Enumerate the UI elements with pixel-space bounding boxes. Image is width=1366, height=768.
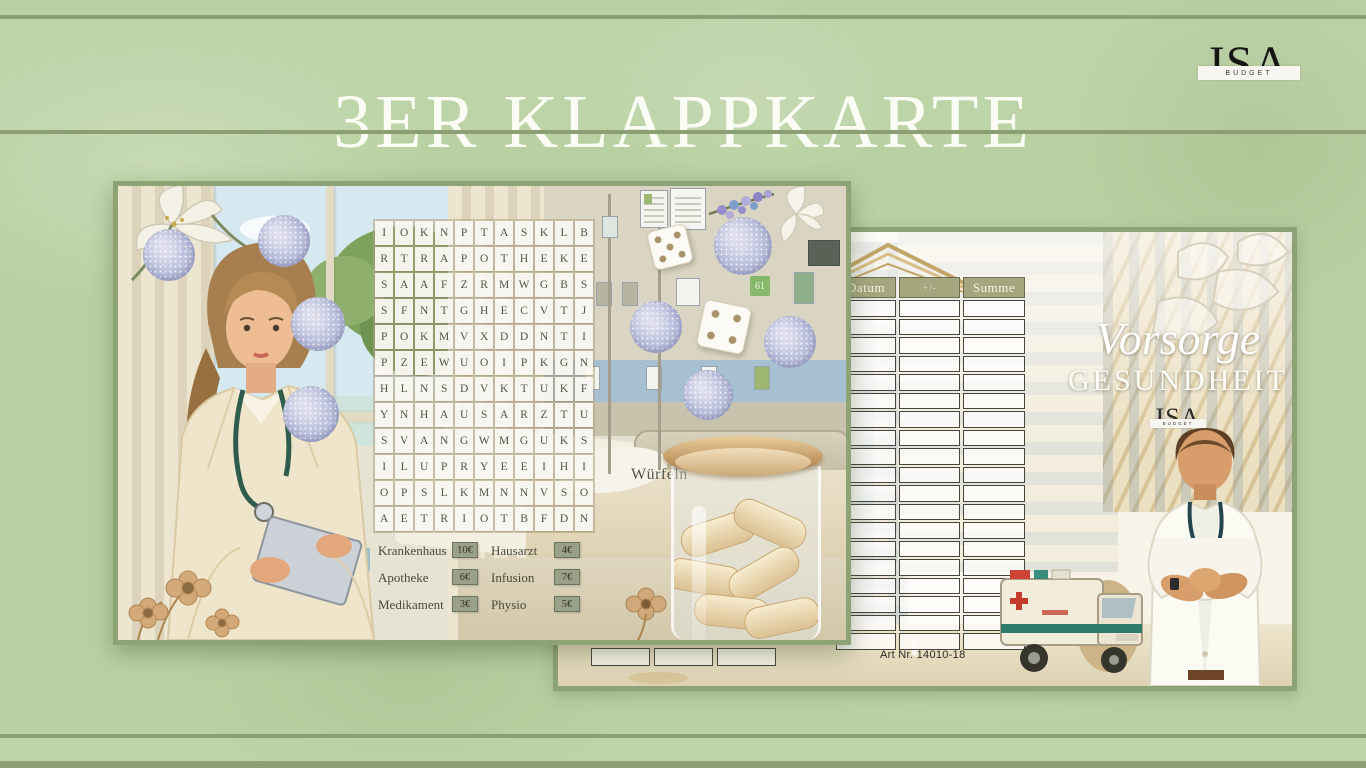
table-cell [963,411,1025,428]
wordsearch-cell: G [535,273,553,297]
wordsearch-cell: S [515,221,533,245]
wordsearch-cell: P [455,247,473,271]
table-header-row: Datum +/- Summe [836,277,1025,298]
pill [729,494,811,554]
peek-cell [717,648,776,666]
col-header-plusminus: +/- [899,277,960,298]
table-cell [963,430,1025,447]
wordsearch-cell: T [555,299,573,323]
wordsearch-cell: V [535,481,553,505]
wordsearch-cell: Z [535,403,553,427]
iv-bag [602,216,618,238]
wordsearch-cell: M [435,325,453,349]
glitter-ball [143,229,195,281]
wordsearch-cell: L [395,377,413,401]
wordsearch-cell: X [475,325,493,349]
wall-document [670,188,706,230]
legend-label: Apotheke [378,570,429,586]
promo-graphic: 3ER KLAPPKARTE ISA BUDGET [0,0,1366,768]
legend-value: 3€ [452,596,478,612]
wordsearch-cell: F [395,299,413,323]
glitter-ball [683,370,733,420]
glass-highlight [692,506,706,640]
table-cell [899,337,960,354]
title-script: Vorsorge [1028,316,1292,362]
wordsearch-cell: W [515,273,533,297]
table-cell [963,504,1025,521]
table-cell [899,411,960,428]
wordsearch-cell: E [515,455,533,479]
peek-cell [591,648,650,666]
rail-card [754,366,770,390]
wordsearch-cell: G [455,429,473,453]
wordsearch-cell: N [515,481,533,505]
wordsearch-cell: N [495,481,513,505]
wordsearch-cell: K [415,221,433,245]
peek-cell [654,648,713,666]
wordsearch-cell: F [535,507,553,531]
wordsearch-cell: B [575,221,593,245]
price-legend: Krankenhaus 10€ Apotheke 6€ Medikament 3… [378,543,618,623]
wordsearch-cell: U [575,403,593,427]
wordsearch-cell: T [435,299,453,323]
wordsearch-cell: I [575,455,593,479]
legend-value: 5€ [554,596,580,612]
table-cell [899,559,960,576]
wordsearch-cell: K [455,481,473,505]
wordsearch-cell: K [555,377,573,401]
glitter-ball [714,217,772,275]
wordsearch-cell: O [575,481,593,505]
table-cell [963,448,1025,465]
wordsearch-cell: O [475,351,493,375]
wordsearch-cell: S [375,429,393,453]
table-cell [899,467,960,484]
wordsearch-cell: E [415,351,433,375]
wordsearch-cell: A [435,403,453,427]
wordsearch-grid: IOKNPTASKLBRTRAPOTHEKESAAFZRMWGBSSFNTGHE… [373,219,595,533]
table-cell [963,337,1025,354]
table-cell [899,448,960,465]
wordsearch-cell: K [415,325,433,349]
table-row [836,356,1025,373]
table-row [836,337,1025,354]
wordsearch-cell: V [455,325,473,349]
wordsearch-cell: V [475,377,493,401]
wordsearch-cell: O [375,481,393,505]
wordsearch-cell: D [515,325,533,349]
logo-banner: BUDGET [1198,66,1300,80]
wordsearch-cell: A [375,507,393,531]
wordsearch-cell: N [435,221,453,245]
wordsearch-cell: M [495,273,513,297]
wordsearch-cell: U [535,377,553,401]
col-header-summe: Summe [963,277,1025,298]
wordsearch-cell: L [435,481,453,505]
wordsearch-cell: I [375,455,393,479]
wordsearch-cell: Z [395,351,413,375]
wordsearch-cell: R [475,273,493,297]
wordsearch-cell: G [555,351,573,375]
table-cell [899,300,960,317]
wordsearch-cell: E [395,507,413,531]
wordsearch-cell: I [575,325,593,349]
table-cell [899,430,960,447]
glitter-ball [764,316,816,368]
wordsearch-cell: N [575,507,593,531]
wordsearch-cell: N [415,377,433,401]
table-cell [899,596,960,613]
wordsearch-cell: P [375,325,393,349]
wordsearch-cell: H [475,299,493,323]
wordsearch-cell: E [535,247,553,271]
wordsearch-cell: E [495,299,513,323]
table-cell [899,393,960,410]
wordsearch-cell: L [395,455,413,479]
wordsearch-cell: U [455,351,473,375]
table-cell [899,633,960,650]
table-cell [963,374,1025,391]
wordsearch-cell: B [555,273,573,297]
wordsearch-cell: T [495,507,513,531]
table-cell [899,578,960,595]
wordsearch-cell: C [515,299,533,323]
wordsearch-cell: S [375,299,393,323]
table-cell [963,522,1025,539]
wordsearch-cell: N [435,429,453,453]
wordsearch-cell: M [495,429,513,453]
wordsearch-cell: T [515,377,533,401]
wordsearch-cell: T [475,221,493,245]
wordsearch-cell: S [375,273,393,297]
wordsearch-cell: R [435,507,453,531]
table-row [836,393,1025,410]
wordsearch-cell: I [455,507,473,531]
wordsearch-cell: S [575,273,593,297]
legend-label: Hausarzt [491,543,537,559]
wall-fixture [794,272,814,304]
title-caps: GESUNDHEIT [1028,364,1292,397]
wordsearch-cell: K [555,247,573,271]
wordsearch-cell: K [535,221,553,245]
jar-glass [671,466,821,640]
table-cell [899,504,960,521]
table-cell [899,319,960,336]
glitter-ball [630,301,682,353]
wordsearch-cell: P [435,455,453,479]
right-card-title: Vorsorge GESUNDHEIT ISA BUDGET [1028,316,1292,431]
wordsearch-cell: P [455,221,473,245]
wordsearch-cell: H [375,377,393,401]
wordsearch-cell: S [575,429,593,453]
wordsearch-cell: V [535,299,553,323]
wordsearch-cell: G [515,429,533,453]
glitter-ball [258,215,310,267]
wordsearch-cell: T [495,247,513,271]
wordsearch-cell: N [575,351,593,375]
wordsearch-cell: D [455,377,473,401]
card-left-panel: 61 [113,181,851,645]
wordsearch-cell: H [515,247,533,271]
table-row [836,411,1025,428]
legend-label: Infusion [491,570,534,586]
table-cell [899,615,960,632]
wordsearch-cell: E [575,247,593,271]
table-cell [899,541,960,558]
legend-value: 4€ [554,542,580,558]
wordsearch-cell: A [395,273,413,297]
wordsearch-cell: D [495,325,513,349]
wordsearch-cell: S [475,403,493,427]
table-cell [899,356,960,373]
table-row [836,504,1025,521]
article-number: Art Nr. 14010-18 [880,649,966,661]
left-card-art: 61 [118,186,846,640]
wordsearch-cell: P [395,481,413,505]
document-badge [644,194,652,204]
bottom-rule-2 [0,761,1366,768]
wordsearch-cell: E [495,455,513,479]
wordsearch-cell: R [415,247,433,271]
wordsearch-cell: T [555,325,573,349]
wordsearch-cell: P [375,351,393,375]
isa-budget-logo: ISA BUDGET [1202,40,1296,88]
wordsearch-cell: J [575,299,593,323]
table-cell [963,393,1025,410]
bush [628,672,688,684]
wordsearch-cell: V [395,429,413,453]
wordsearch-cell: Y [475,455,493,479]
wordsearch-cell: K [555,429,573,453]
wordsearch-cell: T [415,507,433,531]
wordsearch-cell: I [375,221,393,245]
top-rule-2 [0,130,1366,134]
wordsearch-cell: S [415,481,433,505]
wordsearch-cell: P [515,351,533,375]
doctor-male-illustration [1110,428,1292,686]
wordsearch-cell: K [495,377,513,401]
wordsearch-cell: U [415,455,433,479]
wordsearch-cell: L [555,221,573,245]
wordsearch-cell: N [535,325,553,349]
wordsearch-cell: K [535,351,553,375]
table-cell [963,467,1025,484]
wall-frame [676,278,700,306]
golden-flower [618,578,674,640]
wordsearch-cell: H [415,403,433,427]
wordsearch-cell: O [475,247,493,271]
wordsearch-cell: S [555,481,573,505]
table-row [836,300,1025,317]
wordsearch-cell: A [495,221,513,245]
wordsearch-cell: D [555,507,573,531]
wordsearch-cell: R [455,455,473,479]
wordsearch-cell: U [535,429,553,453]
wordsearch-cell: Y [375,403,393,427]
wordsearch-cell: H [555,455,573,479]
legend-label: Medikament [378,597,444,613]
wordsearch-cell: I [495,351,513,375]
wordsearch-cell: T [395,247,413,271]
wordsearch-cell: N [395,403,413,427]
logo-banner: BUDGET [1150,419,1207,428]
wordsearch-cell: O [475,507,493,531]
wordsearch-cell: A [435,247,453,271]
table-cell [963,300,1025,317]
table-cell [899,374,960,391]
wordsearch-cell: W [475,429,493,453]
wordsearch-cell: F [575,377,593,401]
wordsearch-cell: U [455,403,473,427]
legend-label: Krankenhaus [378,543,447,559]
wordsearch-cell: R [375,247,393,271]
room-number-sign: 61 [750,276,770,296]
wordsearch-cell: S [435,377,453,401]
table-row [836,522,1025,539]
wall-fixture [622,282,638,306]
glitter-ball [283,386,339,442]
wordsearch-cell: B [515,507,533,531]
table-row [836,430,1025,447]
table-row [836,374,1025,391]
table-cell [963,485,1025,502]
legend-value: 6€ [452,569,478,585]
wordsearch-cell: W [435,351,453,375]
wordsearch-cell: A [415,273,433,297]
bottom-band [0,738,1366,762]
wordsearch-cell: O [395,325,413,349]
wordsearch-cell: N [415,299,433,323]
wordsearch-cell: F [435,273,453,297]
wordsearch-cell: G [455,299,473,323]
table-cell [963,319,1025,336]
wordsearch-cell: R [515,403,533,427]
table-cell [899,522,960,539]
table-row [836,485,1025,502]
golden-flowers [118,546,268,640]
wordsearch-cell: A [415,429,433,453]
legend-value: 7€ [554,569,580,585]
table-cell [899,485,960,502]
wordsearch-cell: Z [455,273,473,297]
legend-label: Physio [491,597,526,613]
table-row [836,467,1025,484]
logo-name: ISA [1202,40,1296,88]
table-cell [963,356,1025,373]
legend-value: 10€ [452,542,478,558]
pill-jar [661,436,825,640]
wordsearch-cell: T [555,403,573,427]
page-title: 3ER KLAPPKARTE [0,77,1366,168]
glitter-ball [291,297,345,351]
wordsearch-cell: O [395,221,413,245]
wordsearch-cell: A [495,403,513,427]
table-row [836,448,1025,465]
table-row [836,319,1025,336]
wordsearch-cell: I [535,455,553,479]
dice-icon [696,299,753,356]
jar-lid-top [675,448,811,476]
wordsearch-cell: M [475,481,493,505]
